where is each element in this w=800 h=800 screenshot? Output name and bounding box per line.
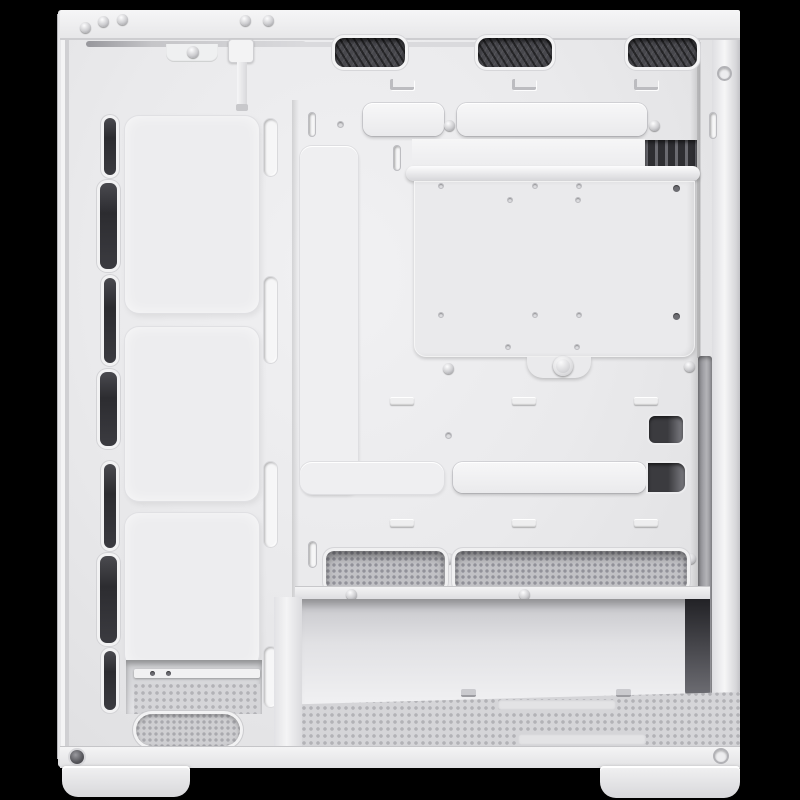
standoff-hole bbox=[574, 344, 580, 350]
front-intake-slot bbox=[100, 556, 117, 643]
mount-hook bbox=[390, 79, 414, 90]
standoff-hole bbox=[505, 344, 511, 350]
bottom-rail bbox=[60, 746, 740, 768]
rail-screw-dot bbox=[166, 671, 171, 676]
tray-screw bbox=[443, 363, 454, 374]
cable-cutout-cover bbox=[363, 103, 444, 136]
psu-rail-clip bbox=[461, 689, 476, 697]
front-panel-cable bbox=[237, 62, 247, 106]
bottom-screw bbox=[70, 750, 84, 764]
front-intake-slot bbox=[104, 651, 116, 710]
mini-slot bbox=[709, 112, 717, 139]
standoff-hole bbox=[575, 197, 581, 203]
pin-hole bbox=[673, 185, 680, 192]
case-foot bbox=[62, 766, 190, 797]
product-image bbox=[0, 0, 800, 800]
psu-rail-clip bbox=[616, 689, 631, 697]
front-intake-slot bbox=[100, 183, 117, 269]
case-foot bbox=[600, 766, 740, 798]
front-panel-cable-connector bbox=[228, 39, 254, 63]
standoff-hole bbox=[576, 183, 582, 189]
cover-screw bbox=[444, 120, 455, 131]
top-fan-vent-mesh bbox=[628, 38, 697, 67]
stamped-tab bbox=[634, 519, 658, 527]
mini-slot bbox=[308, 112, 316, 137]
bracket-screw bbox=[187, 46, 199, 58]
bottom-screw-hole bbox=[713, 748, 729, 764]
psu-shroud-mesh-slot bbox=[326, 551, 445, 590]
tray-hole bbox=[445, 432, 452, 439]
flange-screw-hole bbox=[717, 66, 732, 81]
rear-seam bbox=[697, 42, 701, 358]
front-fan-pad bbox=[125, 116, 259, 313]
standoff-hole bbox=[532, 183, 538, 189]
tray-hole bbox=[337, 121, 344, 128]
fan-rail-slot bbox=[264, 462, 277, 547]
cable-cutout-cover bbox=[457, 103, 647, 136]
divider-post bbox=[274, 597, 302, 747]
front-intake-slot bbox=[104, 464, 116, 548]
filter-handle bbox=[498, 700, 616, 710]
standoff-hole bbox=[438, 183, 444, 189]
plate-lip bbox=[406, 166, 700, 181]
cover-screw bbox=[649, 120, 660, 131]
standoff-hole bbox=[438, 312, 444, 318]
top-fan-vent-mesh bbox=[478, 38, 552, 67]
rear-corner-notch bbox=[685, 599, 710, 697]
fan-rail-slot bbox=[264, 119, 277, 176]
rail-screw bbox=[240, 15, 251, 26]
motherboard-plate bbox=[414, 181, 695, 357]
stamped-tab bbox=[512, 519, 536, 527]
rear-cable-cutout bbox=[648, 463, 685, 492]
top-rail bbox=[60, 10, 740, 40]
cable-channel-cover bbox=[300, 146, 358, 494]
rail-screw bbox=[98, 16, 109, 27]
front-intake-slot bbox=[104, 278, 116, 363]
fan-rail-slot bbox=[264, 277, 277, 363]
standoff-hole bbox=[576, 312, 582, 318]
psu-shroud-mesh-slot bbox=[455, 551, 687, 590]
stamped-tab bbox=[634, 397, 658, 405]
shroud-sill bbox=[295, 586, 710, 599]
standoff-hole bbox=[532, 312, 538, 318]
interior-floor-perforation bbox=[134, 684, 260, 714]
tray-screw bbox=[684, 361, 695, 372]
top-fan-vent-mesh bbox=[335, 38, 405, 67]
mini-slot bbox=[308, 541, 317, 568]
filter-handle bbox=[518, 734, 646, 745]
front-fan-pad bbox=[125, 513, 259, 668]
cable-channel-cover-foot bbox=[300, 462, 444, 494]
cable-end bbox=[236, 104, 248, 111]
rear-cable-cutout bbox=[649, 416, 683, 443]
front-fan-pad bbox=[125, 327, 259, 501]
standoff-hole bbox=[507, 197, 513, 203]
rail-screw-dot bbox=[150, 671, 155, 676]
mount-hook bbox=[634, 79, 658, 90]
stamped-tab bbox=[390, 519, 414, 527]
mount-hook bbox=[512, 79, 536, 90]
stamped-tab bbox=[512, 397, 536, 405]
rail-screw bbox=[117, 14, 128, 25]
cable-cutout-cover bbox=[453, 462, 646, 493]
plate-thumbscrew bbox=[553, 356, 573, 376]
mini-slot bbox=[393, 145, 401, 171]
front-bottom-vent bbox=[136, 714, 240, 746]
plate-top-band bbox=[412, 139, 645, 168]
front-edge-strip bbox=[57, 14, 69, 759]
stamped-tab bbox=[390, 397, 414, 405]
front-intake-slot bbox=[100, 372, 117, 446]
rail-screw bbox=[80, 22, 91, 33]
rail-screw bbox=[263, 15, 274, 26]
pin-hole bbox=[673, 313, 680, 320]
front-intake-slot bbox=[104, 118, 116, 175]
